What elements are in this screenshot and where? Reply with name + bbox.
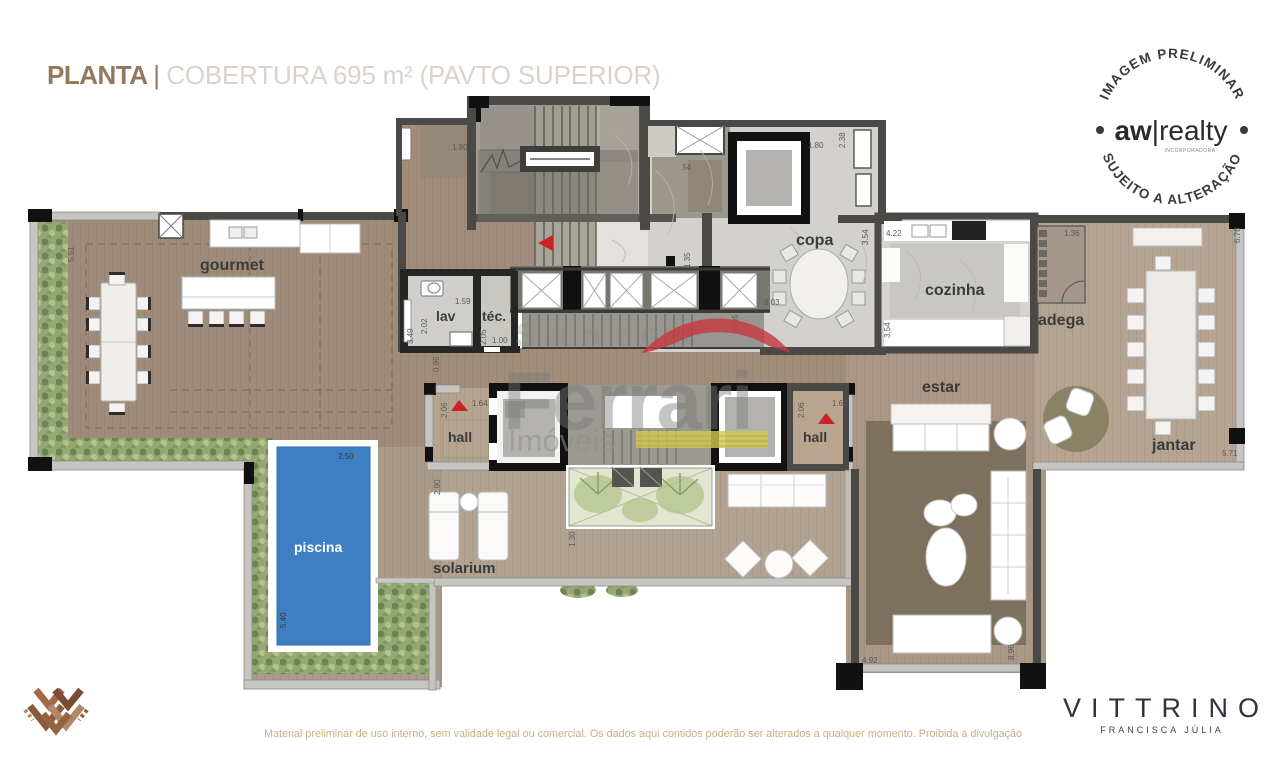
svg-text:piscina: piscina [294, 539, 342, 555]
svg-text:2.90: 2.90 [433, 479, 442, 495]
svg-text:1.30: 1.30 [568, 531, 577, 547]
svg-text:SUJEITO A ALTERAÇÃO: SUJEITO A ALTERAÇÃO [1100, 151, 1245, 207]
svg-text:4.92: 4.92 [862, 656, 878, 665]
svg-text:Material preliminar de uso int: Material preliminar de uso interno, sem … [264, 728, 1022, 740]
svg-text:cozinha: cozinha [925, 282, 985, 299]
svg-text:2.06: 2.06 [440, 402, 449, 418]
svg-text:6.78: 6.78 [1233, 227, 1242, 243]
svg-text:FRANCISCA JÚLIA: FRANCISCA JÚLIA [1100, 725, 1224, 735]
svg-text:8.03: 8.03 [764, 298, 780, 307]
svg-text:jantar: jantar [1151, 437, 1196, 454]
svg-text:solarium: solarium [433, 560, 496, 577]
svg-text:3.54: 3.54 [861, 229, 870, 245]
svg-text:5.40: 5.40 [279, 612, 288, 628]
svg-text:3.49: 3.49 [406, 328, 415, 344]
svg-text:1.59: 1.59 [455, 297, 471, 306]
svg-text:2.38: 2.38 [838, 132, 847, 148]
svg-text:VITTRINO: VITTRINO [1063, 693, 1269, 723]
svg-text:1.64: 1.64 [472, 399, 488, 408]
svg-text:INCORPORADORA: INCORPORADORA [1164, 148, 1215, 154]
svg-text:aw|realty: aw|realty [1114, 115, 1227, 146]
svg-text:2.06: 2.06 [797, 402, 806, 418]
svg-text:1.80: 1.80 [808, 141, 824, 150]
svg-text:1.36: 1.36 [1064, 229, 1080, 238]
svg-text:hall: hall [448, 429, 472, 445]
svg-text:1.64: 1.64 [832, 399, 848, 408]
svg-text:Imóveis: Imóveis [508, 423, 615, 458]
svg-text:lav: lav [436, 308, 456, 324]
svg-text:gourmet: gourmet [200, 257, 265, 274]
svg-text:estar: estar [922, 379, 960, 396]
svg-text:2.02: 2.02 [420, 318, 429, 334]
svg-text:1.00: 1.00 [492, 336, 508, 345]
svg-text:5.71: 5.71 [1222, 449, 1238, 458]
svg-text:1.35: 1.35 [683, 252, 692, 268]
svg-text:téc.: téc. [482, 308, 506, 324]
svg-text:8.96: 8.96 [1007, 644, 1016, 660]
svg-text:3.54: 3.54 [883, 322, 892, 338]
svg-text:1.80: 1.80 [452, 143, 468, 152]
svg-text:0.96: 0.96 [432, 356, 441, 372]
svg-text:4.22: 4.22 [886, 229, 902, 238]
svg-text:hall: hall [803, 429, 827, 445]
svg-text:5.51: 5.51 [67, 246, 76, 262]
svg-text:.54: .54 [680, 163, 692, 172]
svg-text:copa: copa [796, 232, 833, 249]
svg-text:PLANTA | COBERTURA 695 m² (PAV: PLANTA | COBERTURA 695 m² (PAVTO SUPERIO… [47, 60, 661, 90]
svg-text:adega: adega [1038, 312, 1084, 329]
svg-text:IMAGEM PRELIMINAR: IMAGEM PRELIMINAR [1097, 46, 1248, 102]
svg-text:2.50: 2.50 [338, 452, 354, 461]
svg-text:2.05: 2.05 [479, 329, 488, 345]
